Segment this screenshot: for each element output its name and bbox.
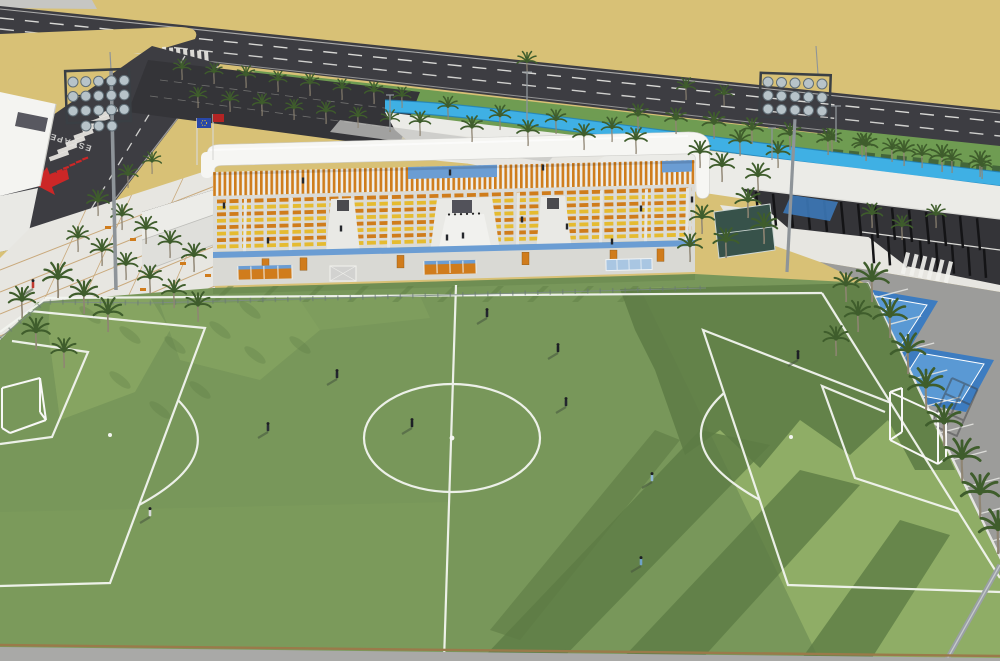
penalty-spot-right <box>789 435 793 439</box>
dugout-left <box>238 265 292 281</box>
penalty-spot-left <box>108 433 112 437</box>
floodlight-right-lamps <box>763 77 827 116</box>
football-field <box>0 274 1000 661</box>
flag-red-icon <box>213 114 224 122</box>
center-spot <box>450 436 455 441</box>
stadium-render: ESCAPE <box>0 0 1000 661</box>
storage-goal <box>330 266 356 281</box>
flag-blue-icon <box>197 118 211 128</box>
stadium-render-canvas: ESCAPE <box>0 0 1000 661</box>
dugout-right <box>424 260 476 275</box>
bench-blue <box>606 258 652 270</box>
